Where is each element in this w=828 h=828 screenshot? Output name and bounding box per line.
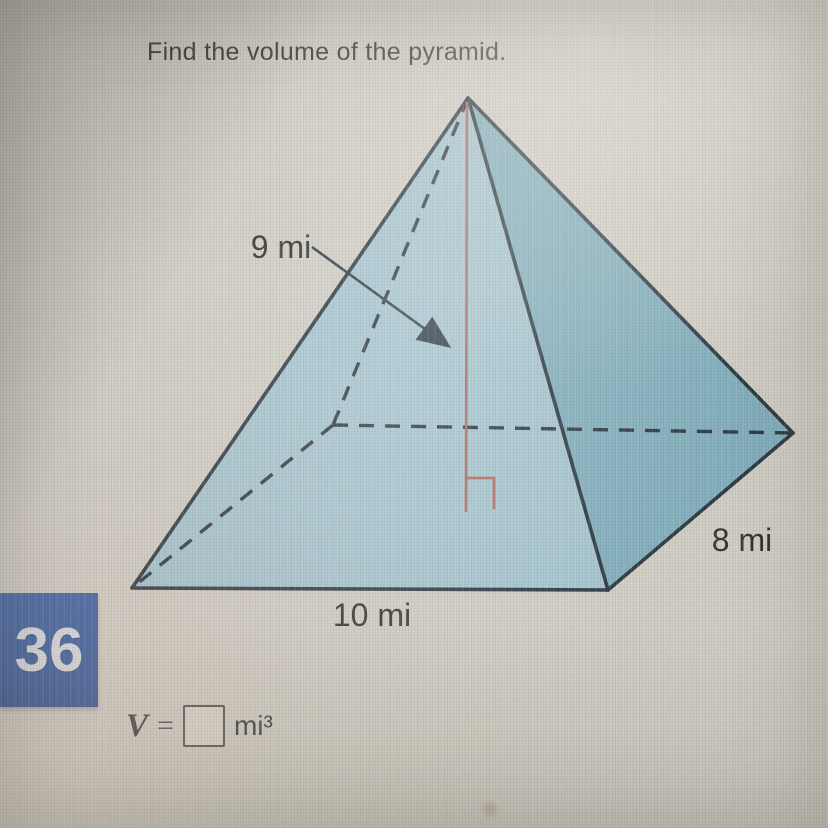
height-line bbox=[466, 102, 467, 512]
question-number: 36 bbox=[15, 615, 84, 686]
unit-label: mi³ bbox=[234, 710, 273, 742]
pyramid-diagram: 9 mi 8 mi 10 mi bbox=[0, 0, 828, 828]
depth-label: 8 mi bbox=[712, 522, 772, 558]
edge-base-front bbox=[132, 588, 608, 590]
height-label: 9 mi bbox=[251, 229, 311, 265]
page-title: Find the volume of the pyramid. bbox=[147, 38, 506, 67]
question-number-badge: 36 bbox=[0, 593, 98, 707]
equals-sign: = bbox=[157, 709, 174, 743]
answer-formula: V = mi³ bbox=[126, 703, 273, 749]
volume-answer-input[interactable] bbox=[183, 705, 225, 747]
quiz-screen: Find the volume of the pyramid. bbox=[0, 0, 828, 828]
width-label: 10 mi bbox=[333, 597, 411, 633]
volume-variable: V bbox=[126, 708, 148, 745]
